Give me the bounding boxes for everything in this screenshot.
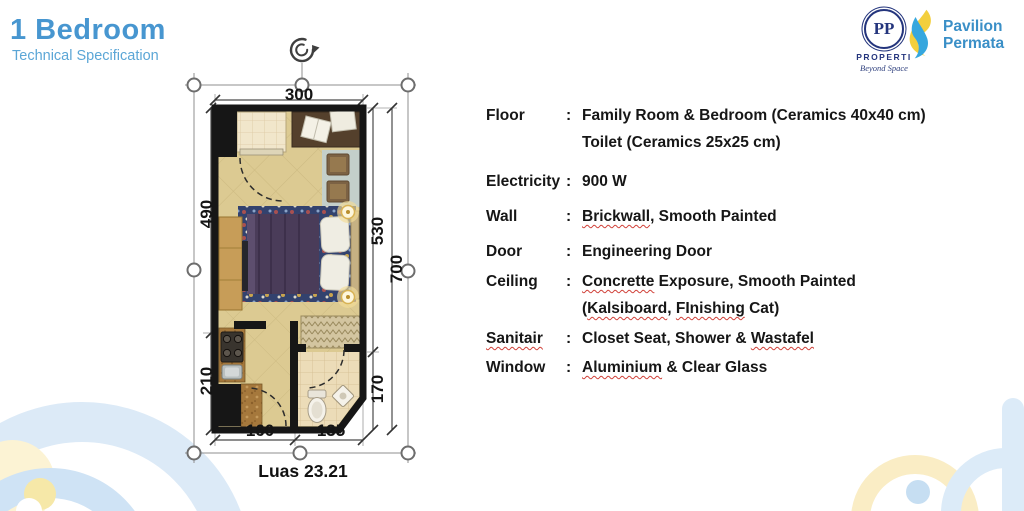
spec-label: Electricity — [486, 168, 566, 195]
spec-row: Sanitair:Closet Seat, Shower & Wastafel — [486, 325, 966, 352]
spec-table: Floor:Family Room & Bedroom (Ceramics 40… — [486, 102, 966, 381]
text-segment: Closet Seat, Shower & — [582, 330, 751, 347]
chairs — [322, 150, 360, 207]
spec-value: Engineering Door — [582, 238, 966, 265]
text-segment: Family Room & Bedroom (Ceramics 40x40 cm… — [582, 107, 926, 124]
bedside-lamp-icon — [337, 286, 359, 308]
spec-label: Sanitair — [486, 325, 566, 352]
headboard — [351, 211, 359, 299]
pillow — [320, 254, 350, 290]
spec-value-line: 900 W — [582, 168, 966, 195]
spec-colon: : — [566, 325, 582, 352]
spec-row: Window:Aluminium & Clear Glass — [486, 354, 966, 381]
spec-row: Floor:Family Room & Bedroom (Ceramics 40… — [486, 102, 966, 156]
dim-left-lower: 210 — [197, 352, 215, 410]
text-segment: Exposure, Smooth Painted — [654, 273, 856, 290]
spec-value-line: (Kalsiboard, FInishing Cat) — [582, 295, 966, 322]
pavilion-permata-logo: Pavilion Permata — [903, 8, 1004, 62]
text-segment: Wall — [486, 208, 517, 225]
spec-label: Wall — [486, 203, 566, 230]
spec-row: Electricity:900 W — [486, 168, 966, 195]
north-rotation-icon — [291, 39, 319, 61]
spec-colon: : — [566, 203, 582, 230]
text-segment: & Clear Glass — [662, 359, 767, 376]
bed — [238, 206, 359, 302]
spec-value: Closet Seat, Shower & Wastafel — [582, 325, 966, 352]
page-subtitle: Technical Specification — [12, 48, 159, 64]
spec-value-line: Concrette Exposure, Smooth Painted — [582, 268, 966, 295]
stove-icon — [221, 332, 243, 362]
spec-colon: : — [566, 354, 582, 381]
spec-value-line: Family Room & Bedroom (Ceramics 40x40 cm… — [582, 102, 966, 129]
pavilion-flame-icon — [903, 8, 939, 62]
spec-value: Family Room & Bedroom (Ceramics 40x40 cm… — [582, 102, 966, 156]
spec-colon: : — [566, 168, 582, 195]
spec-value-line: Toilet (Ceramics 25x25 cm) — [582, 129, 966, 156]
spec-colon: : — [566, 238, 582, 265]
dim-left-upper: 490 — [197, 185, 215, 243]
text-segment: Floor — [486, 107, 525, 124]
spec-row: Ceiling:Concrette Exposure, Smooth Paint… — [486, 268, 966, 322]
misspelled-word: Aluminium — [582, 359, 662, 376]
toilet-icon — [308, 390, 326, 423]
desk — [292, 109, 360, 147]
spec-label: Ceiling — [486, 268, 566, 322]
spec-label: Window — [486, 354, 566, 381]
dim-right-outer: 700 — [387, 241, 405, 297]
pavilion-logo-line1: Pavilion — [943, 18, 1004, 35]
text-segment: Toilet (Ceramics 25x25 cm) — [582, 134, 781, 151]
dim-right-inner-lower: 170 — [368, 361, 386, 417]
spec-value-line: Aluminium & Clear Glass — [582, 354, 966, 381]
text-segment: Door — [486, 243, 522, 260]
pavilion-logo-line2: Permata — [943, 35, 1004, 52]
misspelled-word: FInishing — [676, 300, 745, 317]
spec-value-line: Brickwall, Smooth Painted — [582, 203, 966, 230]
dim-top: 300 — [225, 85, 373, 105]
text-segment: , — [667, 300, 676, 317]
text-segment: Ceiling — [486, 273, 538, 290]
spec-label: Floor — [486, 102, 566, 156]
spec-value-line: Closet Seat, Shower & Wastafel — [582, 325, 966, 352]
spec-value-line: Engineering Door — [582, 238, 966, 265]
spec-label: Door — [486, 238, 566, 265]
text-segment: , Smooth Painted — [650, 208, 777, 225]
spec-value: Brickwall, Smooth Painted — [582, 203, 966, 230]
balcony-pad — [237, 112, 286, 155]
text-segment: Window — [486, 359, 545, 376]
spec-row: Door:Engineering Door — [486, 238, 966, 265]
dim-right-inner-upper: 530 — [368, 203, 386, 259]
dresser — [301, 316, 360, 348]
text-segment: Electricity — [486, 173, 560, 190]
pp-logo-tagline: Beyond Space — [856, 63, 912, 73]
spec-colon: : — [566, 268, 582, 322]
spec-value: Concrette Exposure, Smooth Painted(Kalsi… — [582, 268, 966, 322]
kitchen-sink-icon — [222, 365, 242, 379]
dim-bottom-left: 160 — [225, 421, 295, 441]
text-segment: Engineering Door — [582, 243, 712, 260]
spec-colon: : — [566, 102, 582, 156]
page-title: 1 Bedroom — [10, 14, 166, 47]
misspelled-word: Brickwall — [582, 208, 650, 225]
tv-icon — [242, 241, 248, 291]
text-segment: Cat) — [745, 300, 779, 317]
book-icon — [330, 109, 356, 132]
bedside-lamp-icon — [337, 201, 359, 223]
area-label: Luas 23.21 — [228, 461, 378, 482]
misspelled-word: Sanitair — [486, 330, 543, 347]
spec-value: Aluminium & Clear Glass — [582, 354, 966, 381]
pp-monogram: PP — [874, 19, 895, 39]
spec-value: 900 W — [582, 168, 966, 195]
spec-sheet-page: 1 Bedroom Technical Specification PP PRO… — [0, 0, 1024, 511]
misspelled-word: Wastafel — [751, 330, 814, 347]
dim-bottom-right: 135 — [296, 421, 366, 441]
text-segment: 900 W — [582, 173, 627, 190]
misspelled-word: Kalsiboard — [587, 300, 667, 317]
pp-logo-ring-icon: PP — [864, 9, 904, 49]
misspelled-word: Concrette — [582, 273, 654, 290]
spec-row: Wall:Brickwall, Smooth Painted — [486, 203, 966, 230]
